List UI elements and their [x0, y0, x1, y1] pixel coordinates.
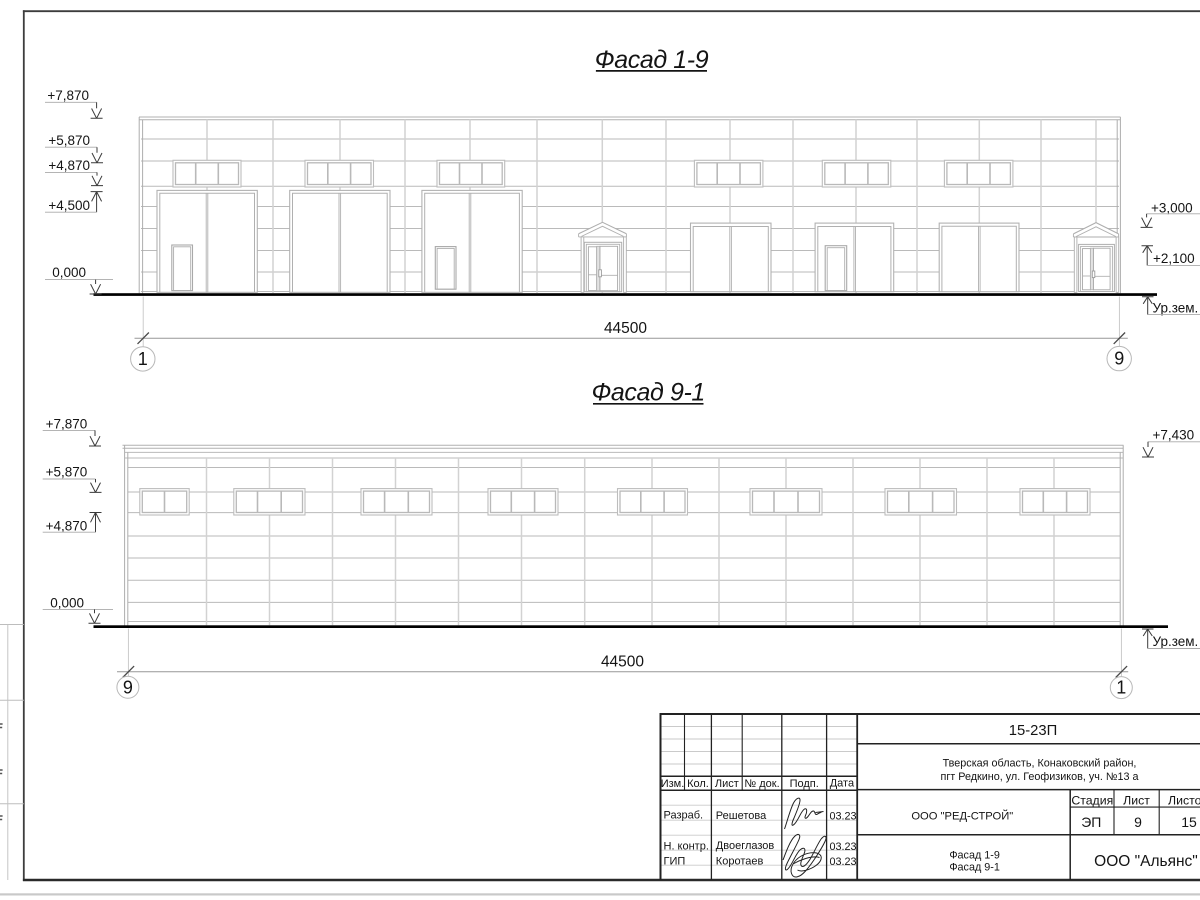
svg-text:9: 9 — [1134, 814, 1142, 830]
svg-text:03.23: 03.23 — [829, 811, 856, 823]
svg-text:+3,000: +3,000 — [1151, 201, 1193, 216]
svg-text:Ур.зем.: Ур.зем. — [1153, 300, 1199, 315]
svg-text:Коротаев: Коротаев — [716, 855, 764, 867]
svg-text:9: 9 — [1114, 349, 1124, 369]
svg-text:№ док.: № док. — [744, 778, 779, 790]
svg-text:Листов: Листов — [1168, 794, 1200, 808]
svg-text:+4,870: +4,870 — [48, 158, 90, 173]
svg-text:15-23П: 15-23П — [1009, 723, 1057, 739]
svg-text:Фасад 9-1: Фасад 9-1 — [949, 862, 1000, 874]
svg-text:Изм.: Изм. — [661, 778, 685, 790]
svg-text:Решетова: Решетова — [716, 810, 767, 822]
svg-text:0,000: 0,000 — [52, 265, 86, 280]
svg-text:ООО "РЕД-СТРОЙ": ООО "РЕД-СТРОЙ" — [911, 810, 1013, 823]
svg-text:Фасад 1-9: Фасад 1-9 — [595, 46, 709, 74]
svg-text:Двоеглазов: Двоеглазов — [716, 840, 775, 852]
svg-text:44500: 44500 — [601, 654, 644, 671]
svg-text:0,000: 0,000 — [50, 595, 84, 610]
svg-text:Тверская область, Конаковский: Тверская область, Конаковский район, — [943, 758, 1137, 770]
svg-text:+2,100: +2,100 — [1153, 251, 1195, 266]
svg-text:ЭП: ЭП — [1081, 814, 1101, 830]
svg-text:03.23: 03.23 — [829, 841, 856, 853]
svg-text:Дата: Дата — [830, 778, 855, 790]
svg-text:+7,870: +7,870 — [47, 88, 89, 103]
svg-text:Лист: Лист — [715, 778, 739, 790]
svg-text:Ур.зем.: Ур.зем. — [1153, 634, 1199, 649]
svg-text:Н. контр.: Н. контр. — [664, 840, 709, 852]
svg-text:Стадия: Стадия — [1071, 794, 1113, 808]
svg-text:44500: 44500 — [604, 320, 647, 337]
svg-text:Лист: Лист — [1123, 794, 1150, 808]
svg-text:+7,430: +7,430 — [1153, 428, 1195, 443]
svg-text:+4,500: +4,500 — [48, 198, 90, 213]
svg-text:+5,870: +5,870 — [48, 133, 90, 148]
svg-text:Разраб.: Разраб. — [664, 810, 704, 822]
svg-text:ГИП: ГИП — [664, 855, 686, 867]
svg-text:1: 1 — [138, 349, 148, 369]
svg-text:Фасад 9-1: Фасад 9-1 — [591, 379, 704, 407]
svg-text:15: 15 — [1181, 814, 1197, 830]
svg-text:Кол.: Кол. — [687, 778, 709, 790]
svg-text:+7,870: +7,870 — [46, 416, 88, 431]
svg-text:1: 1 — [1116, 678, 1126, 698]
svg-text:пгт Редкино, ул. Геофизиков, у: пгт Редкино, ул. Геофизиков, уч. №13 а — [941, 771, 1139, 783]
svg-text:ООО "Альянс": ООО "Альянс" — [1094, 853, 1198, 870]
svg-text:03.23: 03.23 — [829, 856, 856, 868]
svg-text:+5,870: +5,870 — [46, 465, 88, 480]
svg-text:+4,870: +4,870 — [46, 519, 88, 534]
svg-text:Подп.: Подп. — [790, 778, 819, 790]
svg-text:Фасад 1-9: Фасад 1-9 — [949, 849, 1000, 861]
svg-text:9: 9 — [123, 677, 133, 697]
